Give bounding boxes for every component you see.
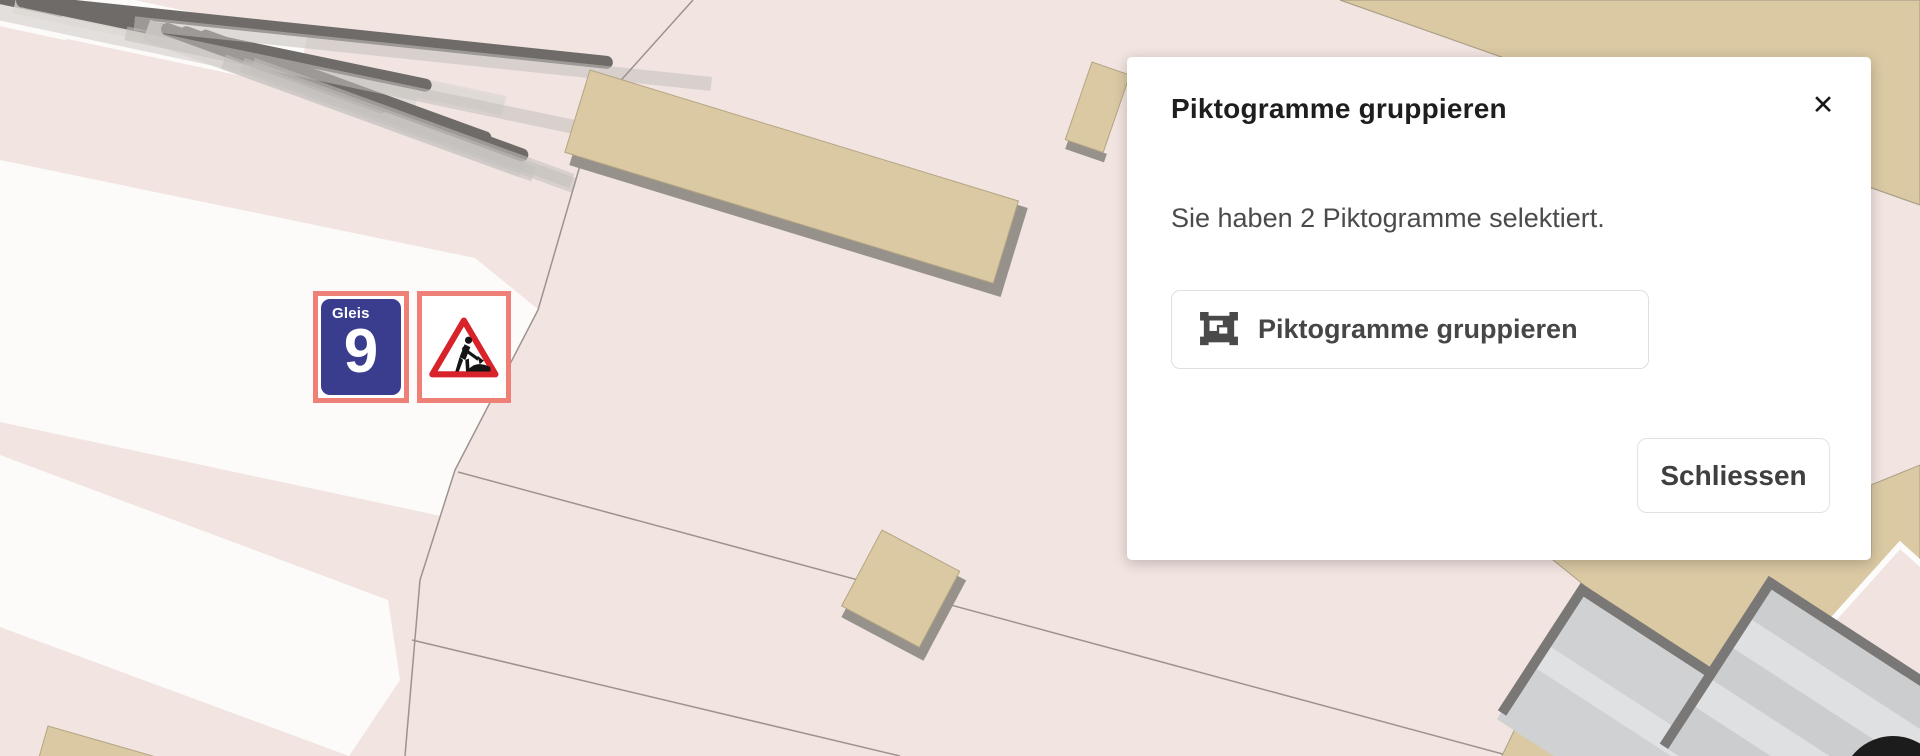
track-sign-number: 9 (321, 319, 401, 384)
schliessen-button[interactable]: Schliessen (1637, 438, 1830, 513)
dialog-message: Sie haben 2 Piktogramme selektiert. (1171, 203, 1605, 234)
schliessen-button-label: Schliessen (1660, 460, 1806, 492)
group-objects-icon (1200, 312, 1238, 348)
dialog-title: Piktogramme gruppieren (1171, 93, 1507, 125)
pictogram-track-9[interactable]: Gleis 9 (313, 291, 409, 403)
roadworks-triangle-icon (428, 301, 500, 393)
pictogram-construction[interactable] (417, 291, 511, 403)
group-pictograms-dialog: Piktogramme gruppieren ✕ Sie haben 2 Pik… (1127, 57, 1871, 560)
track-9-sign: Gleis 9 (321, 299, 401, 395)
group-pictograms-button[interactable]: Piktogramme gruppieren (1171, 290, 1649, 369)
group-button-label: Piktogramme gruppieren (1258, 314, 1578, 345)
close-icon[interactable]: ✕ (1801, 83, 1845, 127)
construction-sign (425, 299, 503, 395)
